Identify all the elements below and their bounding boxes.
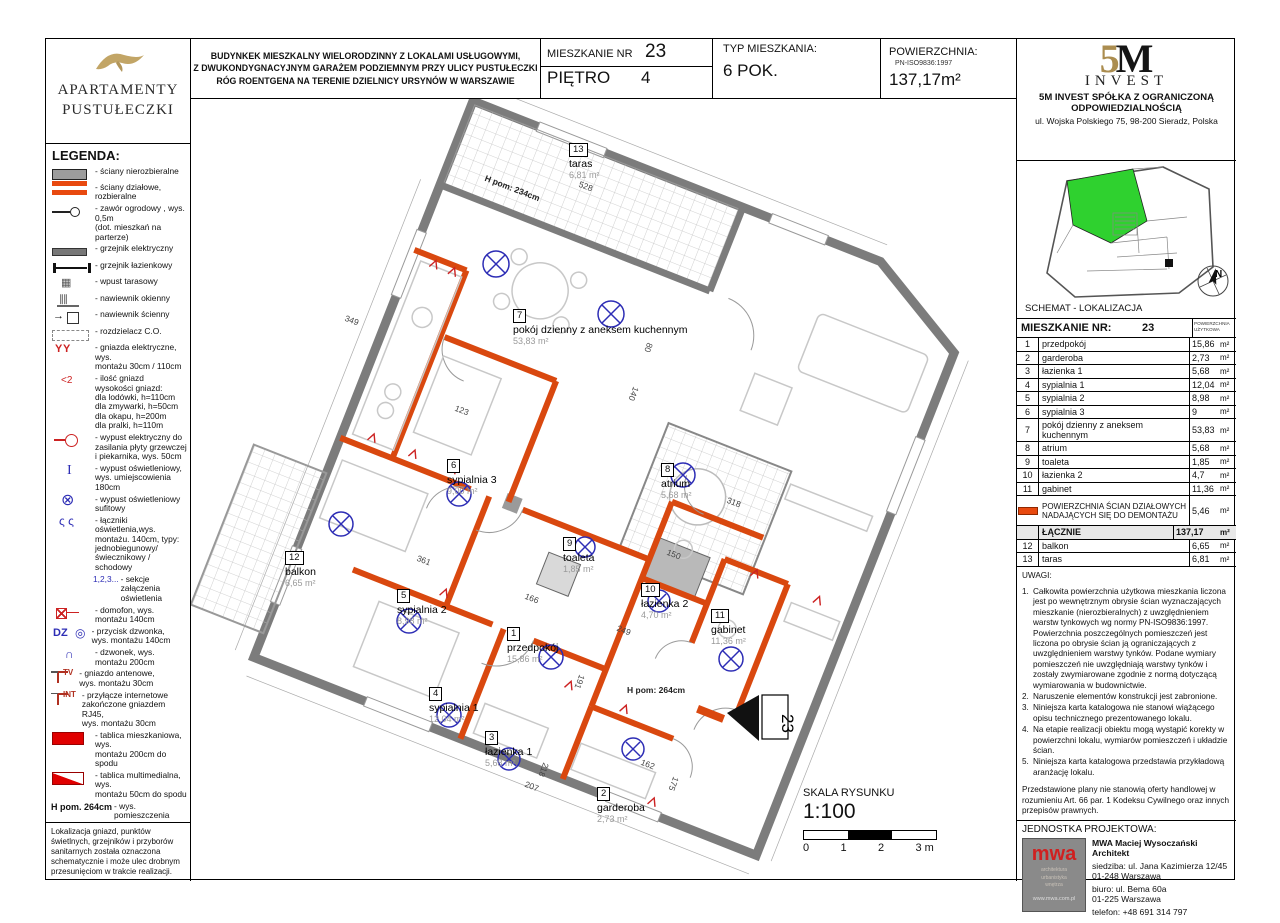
legend-item: - łączniki oświetlenia,wys. montażu. 140… xyxy=(51,516,187,572)
room-label: 3 łazienka 1 5,68 m² xyxy=(485,727,532,768)
room-label: 4 sypialnia 1 12,04 m² xyxy=(429,683,479,724)
room-name: przedpokój xyxy=(507,642,558,654)
legend-item: - grzejnik elektryczny xyxy=(51,244,187,258)
room-number: 10 xyxy=(641,583,660,597)
room-label: 5 sypialnia 2 8,98 m² xyxy=(397,585,447,626)
room-area: 6,81 m² xyxy=(569,170,600,180)
room-number: 11 xyxy=(711,609,729,623)
scale-block: SKALA RYSUNKU 1:100 0 1 2 3 m xyxy=(803,787,1013,854)
table-row: 1 przedpokój 15,86 m² xyxy=(1017,338,1236,352)
room-name: balkon xyxy=(285,566,316,578)
room-label: 10 łazienka 2 4,70 m² xyxy=(641,579,688,620)
brand-cell: APARTAMENTY PUSTUŁECZKI xyxy=(46,39,191,144)
dimension-text: H pom: 264cm xyxy=(627,685,685,695)
location-schematic: N SCHEMAT - LOKALIZACJA xyxy=(1017,161,1236,319)
legend-item: - wypust oświetleniowy sufitowy xyxy=(51,495,187,514)
room-area: 11,36 m² xyxy=(711,636,746,646)
building-description: BUDYNKEK MIESZKALNY WIELORODZINNY Z LOKA… xyxy=(191,39,541,99)
legend-icon xyxy=(51,244,91,258)
legend-item: - wypust elektryczny do zasilania płyty … xyxy=(51,433,187,461)
floor-number: 4 xyxy=(641,68,650,87)
room-name: pokój dzienny z aneksem kuchennym xyxy=(513,324,688,336)
note-item: 1. Całkowita powierzchnia użytkowa miesz… xyxy=(1022,587,1231,691)
area-cell: POWIERZCHNIA: PN-ISO9836:1997 137,17m² xyxy=(881,39,1016,99)
legend-icon xyxy=(51,648,91,662)
room-label: 11 gabinet 11,36 m² xyxy=(711,605,746,646)
legend-item: - tablica multimedialna, wys. montażu 50… xyxy=(51,771,187,799)
legend-item: - tablica mieszkaniowa, wys. montażu 200… xyxy=(51,731,187,769)
legend-item: - ilość gniazd wysokości gniazd: dla lod… xyxy=(51,374,187,430)
design-unit-title: JEDNOSTKA PROJEKTOWA: xyxy=(1022,824,1231,835)
mwa-logo: mwa architektura urbanistyka wnętrza www… xyxy=(1022,838,1086,912)
company-address: ul. Wojska Polskiego 75, 98-200 Sieradz,… xyxy=(1017,116,1236,126)
room-number: 4 xyxy=(429,687,442,701)
floor-plan: 23 13 taras 6,81 m² 7 pokój dzienny z an… xyxy=(191,99,1016,881)
table-row: 12 balkon 6,65 m² xyxy=(1017,540,1236,554)
scale-bar xyxy=(803,830,937,840)
design-unit-contact: MWA Maciej Wysoczański Architekt siedzib… xyxy=(1092,838,1231,920)
table-row: 13 taras 6,81 m² xyxy=(1017,553,1236,567)
legend-icon xyxy=(51,183,91,197)
legend-icon xyxy=(51,495,91,509)
room-label: 13 taras 6,81 m² xyxy=(569,139,600,180)
legend-item: - domofon, wys. montażu 140cm xyxy=(51,606,187,625)
svg-text:N: N xyxy=(1215,269,1222,280)
legend-item: INT - przyłącze internetowe zakończone g… xyxy=(51,691,187,729)
room-name: sypialnia 1 xyxy=(429,702,479,714)
legend-icon xyxy=(51,374,91,388)
room-number: 1 xyxy=(507,627,520,641)
floor-label: PIĘTRO xyxy=(547,68,610,87)
legend-item: - ściany działowe, rozbieralne xyxy=(51,183,187,202)
table-extra-rows: 12 balkon 6,65 m² 13 taras 6,81 m² xyxy=(1017,540,1236,567)
room-number: 13 xyxy=(569,143,588,157)
legend-item: - zawór ogrodowy , wys. 0,5m (dot. miesz… xyxy=(51,204,187,242)
developer-block: 5M INVEST 5M INVEST SPÓŁKA Z OGRANICZONĄ… xyxy=(1017,39,1236,161)
legend-icon xyxy=(51,464,91,478)
table-row: 5 sypialnia 2 8,98 m² xyxy=(1017,392,1236,406)
legend-item: 1,2,3... - sekcje załączenia oświetlenia xyxy=(51,575,187,603)
floor-plan-drawing: 23 xyxy=(191,99,1016,881)
room-name: taras xyxy=(569,158,600,170)
table-title: MIESZKANIE NR: xyxy=(1017,319,1140,337)
room-name: sypialnia 3 xyxy=(447,474,497,486)
legend: LEGENDA: - ściany nierozbieralne - ścian… xyxy=(46,144,191,881)
room-label: 1 przedpokój 15,86 m² xyxy=(507,623,558,664)
legend-icon xyxy=(51,731,91,745)
note-item: 5. Niniejsza karta katalogowa przedstawi… xyxy=(1022,757,1231,778)
type-value: 6 POK. xyxy=(723,61,870,81)
location-caption: SCHEMAT - LOKALIZACJA xyxy=(1025,303,1142,314)
room-area: 12,04 m² xyxy=(429,714,479,724)
room-area: 2,73 m² xyxy=(597,814,645,824)
room-label: 2 garderoba 2,73 m² xyxy=(597,783,645,824)
legend-item: H pom. 264cm - wys. pomieszczenia xyxy=(51,802,187,821)
legend-icon xyxy=(51,277,91,291)
legend-icon xyxy=(51,433,91,447)
table-row: 6 sypialnia 3 9 m² xyxy=(1017,406,1236,420)
room-label: 8 atrium 5,68 m² xyxy=(661,459,692,500)
table-row: 3 łazienka 1 5,68 m² xyxy=(1017,365,1236,379)
legend-icon xyxy=(51,310,91,324)
invest-logo-text: INVEST xyxy=(1017,73,1236,90)
location-map: N xyxy=(1017,161,1235,301)
room-area: 5,68 m² xyxy=(485,758,532,768)
room-number: 3 xyxy=(485,731,498,745)
legend-item: TV - gniazdo antenowe, wys. montażu 30cm xyxy=(51,669,187,688)
notes-section: UWAGI: 1. Całkowita powierzchnia użytkow… xyxy=(1017,567,1236,822)
room-name: atrium xyxy=(661,478,692,490)
apartment-label: MIESZKANIE NR xyxy=(547,48,633,60)
room-number: 8 xyxy=(661,463,674,477)
orange-wall-swatch xyxy=(1018,507,1038,515)
table-row: 10 łazienka 2 4,7 m² xyxy=(1017,469,1236,483)
legend-items: - ściany nierozbieralne - ściany działow… xyxy=(46,164,190,822)
legend-icon xyxy=(51,327,91,341)
room-area: 15,86 m² xyxy=(507,654,558,664)
kestrel-bird-icon xyxy=(88,47,148,73)
legend-icon xyxy=(51,167,91,181)
room-label: 9 toaleta 1,85 m² xyxy=(563,533,595,574)
legend-item: - gniazda elektryczne, wys. montażu 30cm… xyxy=(51,343,187,371)
scale-title: SKALA RYSUNKU xyxy=(803,787,1013,799)
legend-icon xyxy=(51,516,91,530)
room-area: 4,70 m² xyxy=(641,610,688,620)
area-label: POWIERZCHNIA: xyxy=(889,46,978,58)
table-row: 4 sypialnia 1 12,04 m² xyxy=(1017,379,1236,393)
room-number: 2 xyxy=(597,787,610,801)
legend-item: - ściany nierozbieralne xyxy=(51,167,187,181)
room-number: 5 xyxy=(397,589,410,603)
room-name: toaleta xyxy=(563,552,595,564)
room-number: 12 xyxy=(285,551,304,565)
partition-walls-row: POWIERZCHNIA ŚCIAN DZIAŁOWYCH NADAJĄCYCH… xyxy=(1017,496,1236,526)
legend-icon xyxy=(51,204,91,218)
legend-item: - nawiewnik okienny xyxy=(51,294,187,308)
legend-title: LEGENDA: xyxy=(46,144,190,164)
room-label: 7 pokój dzienny z aneksem kuchennym 53,8… xyxy=(513,305,688,346)
table-column-header: POWIERZCHNIA UŻYTKOWA xyxy=(1192,319,1236,337)
compass-icon: N xyxy=(1198,266,1228,296)
notes-list: 1. Całkowita powierzchnia użytkowa miesz… xyxy=(1022,587,1231,778)
scale-ticks: 0 1 2 3 m xyxy=(803,842,953,854)
notes-title: UWAGI: xyxy=(1022,571,1231,581)
room-name: sypialnia 2 xyxy=(397,604,447,616)
legend-item: - wypust oświetleniowy, wys. umiejscowie… xyxy=(51,464,187,492)
legend-item: - nawiewnik ścienny xyxy=(51,310,187,324)
room-area: 53,83 m² xyxy=(513,336,688,346)
table-row: 11 gabinet 11,36 m² xyxy=(1017,483,1236,497)
legend-icon xyxy=(51,261,91,275)
room-area: 5,68 m² xyxy=(661,490,692,500)
note-item: 2. Naruszenie elementów konstrukcji jest… xyxy=(1022,692,1231,702)
legend-icon xyxy=(51,606,91,620)
table-row: 9 toaleta 1,85 m² xyxy=(1017,456,1236,470)
table-apartment-number: 23 xyxy=(1140,319,1192,337)
table-rows: 1 przedpokój 15,86 m² 2 garderoba 2,73 m… xyxy=(1017,338,1236,496)
legend-item: - wpust tarasowy xyxy=(51,277,187,291)
legend-item: - dzwonek, wys. montażu 200cm xyxy=(51,648,187,667)
legend-icon xyxy=(51,343,91,357)
room-area: 1,85 m² xyxy=(563,564,595,574)
room-area: 8,98 m² xyxy=(397,616,447,626)
room-name: gabinet xyxy=(711,624,746,636)
room-area: 6,65 m² xyxy=(285,578,316,588)
room-name: garderoba xyxy=(597,802,645,814)
note-item: 3. Niniejsza karta katalogowa nie stanow… xyxy=(1022,703,1231,724)
legend-note: Lokalizacja gniazd, punktów świetlnych, … xyxy=(46,822,190,881)
area-norm: PN-ISO9836:1997 xyxy=(895,60,1008,67)
room-number: 6 xyxy=(447,459,460,473)
area-value: 137,17m² xyxy=(889,70,1008,90)
room-area: 9,00 m² xyxy=(447,486,497,496)
legend-item: - grzejnik łazienkowy xyxy=(51,261,187,275)
table-row: 2 garderoba 2,73 m² xyxy=(1017,352,1236,366)
legend-icon xyxy=(51,575,91,589)
company-name: 5M INVEST SPÓŁKA Z OGRANICZONĄ ODPOWIEDZ… xyxy=(1017,92,1236,114)
room-label: 6 sypialnia 3 9,00 m² xyxy=(447,455,497,496)
entrance-number: 23 xyxy=(778,714,797,733)
type-label: TYP MIESZKANIA: xyxy=(723,43,870,55)
room-label: 12 balkon 6,65 m² xyxy=(285,547,316,588)
legend-item: - rozdzielacz C.O. xyxy=(51,327,187,341)
drawing-sheet: APARTAMENTY PUSTUŁECZKI LEGENDA: - ścian… xyxy=(45,38,1235,880)
scale-ratio: 1:100 xyxy=(803,800,1013,824)
room-number: 7 xyxy=(513,309,526,323)
brand-name: APARTAMENTY PUSTUŁECZKI xyxy=(46,80,190,121)
apartment-number-cell: MIESZKANIE NR 23 PIĘTRO 4 xyxy=(541,39,713,99)
notes-footer: Przedstawione plany nie stanowią oferty … xyxy=(1022,785,1231,816)
right-sidebar: 5M INVEST 5M INVEST SPÓŁKA Z OGRANICZONĄ… xyxy=(1016,39,1236,881)
room-name: łazienka 2 xyxy=(641,598,688,610)
room-name: łazienka 1 xyxy=(485,746,532,758)
apartment-type-cell: TYP MIESZKANIA: 6 POK. xyxy=(713,39,881,99)
table-row: 7 pokój dzienny z aneksem kuchennym 53,8… xyxy=(1017,419,1236,442)
apartment-number: 23 xyxy=(645,41,666,62)
rooms-table: MIESZKANIE NR: 23 POWIERZCHNIA UŻYTKOWA … xyxy=(1017,319,1236,567)
table-row: 8 atrium 5,68 m² xyxy=(1017,442,1236,456)
note-item: 4. Na etapie realizacji obiektu mogą wys… xyxy=(1022,725,1231,756)
total-row: ŁĄCZNIE 137,17 m² xyxy=(1017,526,1236,540)
legend-icon xyxy=(51,771,91,785)
5m-logo: 5M xyxy=(1017,41,1236,77)
design-unit-block: JEDNOSTKA PROJEKTOWA: mwa architektura u… xyxy=(1017,821,1236,923)
legend-icon xyxy=(51,294,91,308)
legend-item: DZ - przycisk dzwonka, wys. montażu 140c… xyxy=(51,627,187,646)
room-number: 9 xyxy=(563,537,576,551)
